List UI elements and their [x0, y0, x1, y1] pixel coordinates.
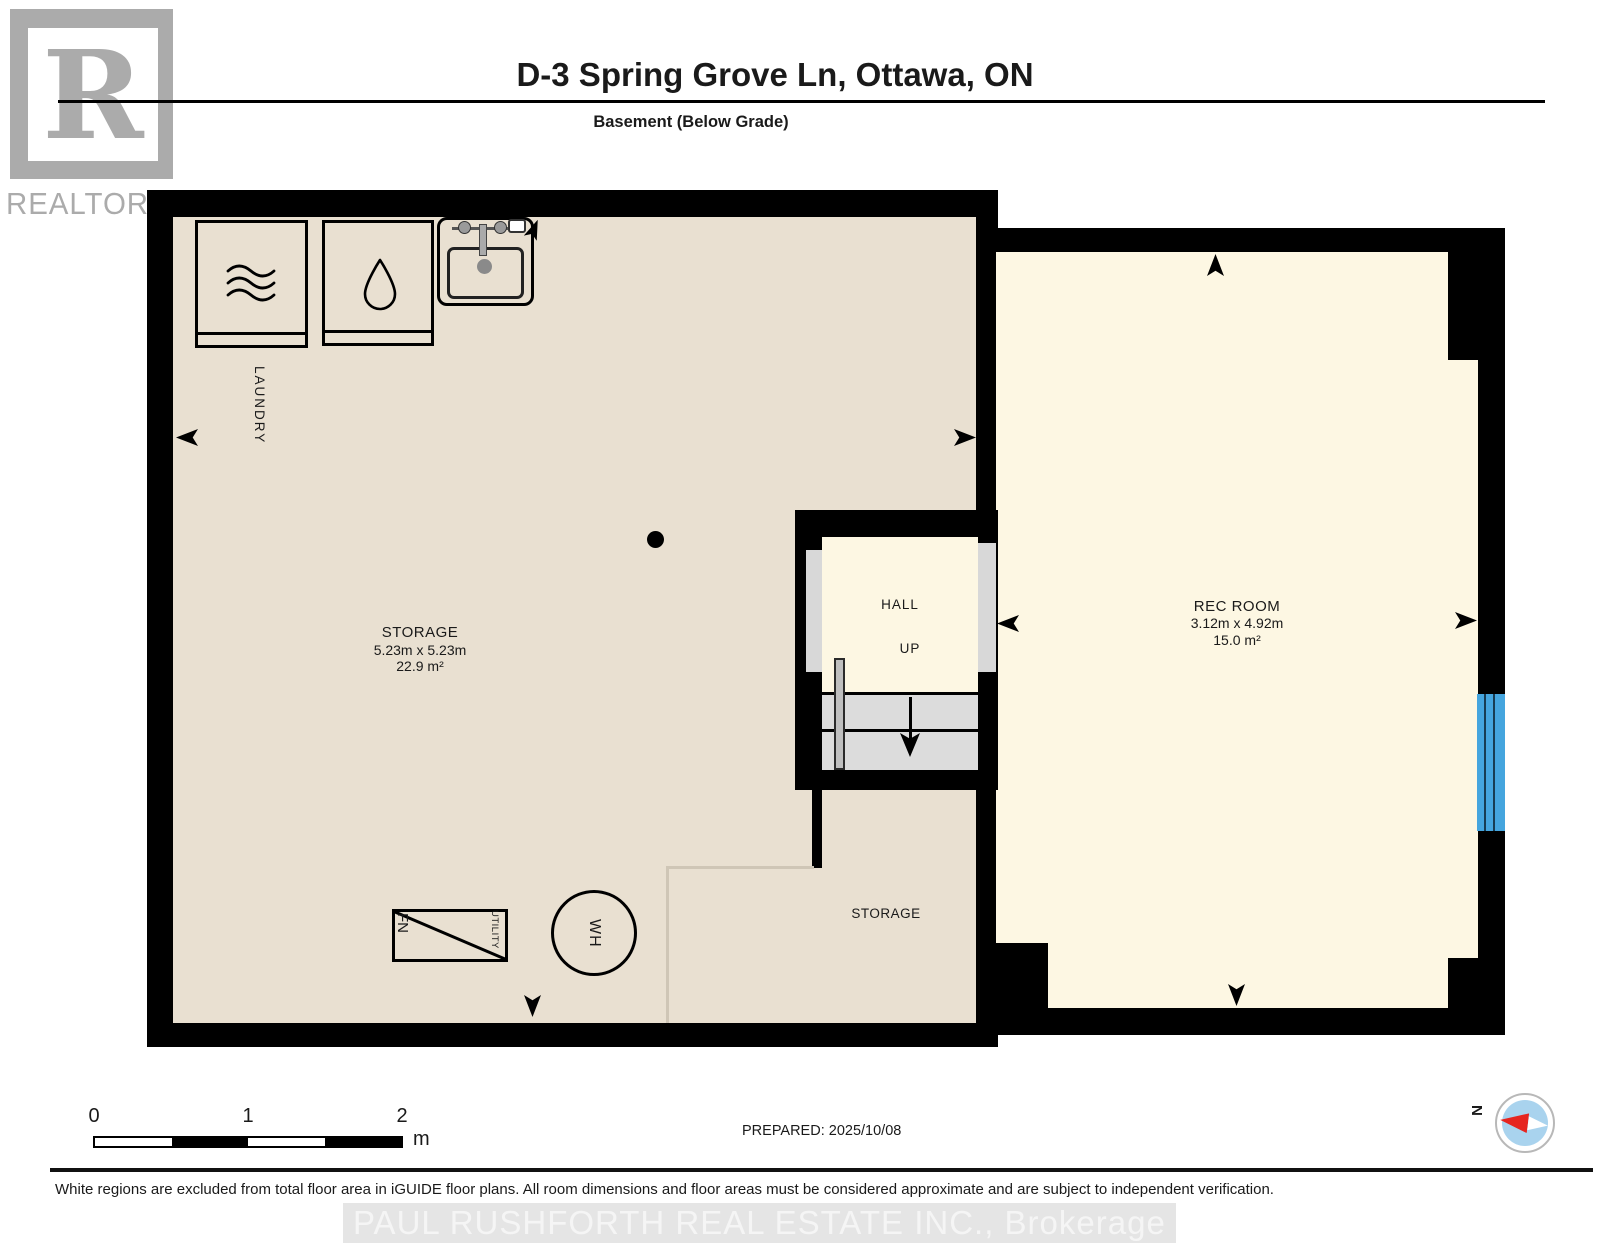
door-opening-left [806, 550, 822, 672]
scale-bar [93, 1136, 403, 1148]
laundry-label: LAUNDRY [252, 366, 267, 444]
scale-tick-1: 1 [238, 1105, 258, 1128]
window-pane-line [1493, 694, 1495, 831]
rec-room-label-group: REC ROOM 3.12m x 4.92m 15.0 m² [1117, 598, 1357, 649]
stairs-down-arrow-stem [909, 697, 912, 739]
room-area: 15.0 m² [1117, 632, 1357, 649]
hall-floor [822, 537, 978, 692]
furnace-label: FN [394, 913, 411, 933]
scale-segment [248, 1138, 325, 1146]
wave-icon [223, 262, 279, 304]
faucet-stem [479, 224, 487, 256]
faucet-knob [494, 221, 507, 234]
prepared-date: PREPARED: 2025/10/08 [742, 1123, 901, 1139]
appliance-panel-line [198, 332, 305, 335]
water-heater-label: WH [585, 919, 603, 948]
door-opening-right [978, 543, 996, 672]
up-label: UP [850, 641, 970, 656]
storage-main-label-group: STORAGE 5.23m x 5.23m 22.9 m² [330, 625, 510, 675]
needle-north-red [1499, 1110, 1529, 1133]
window [1477, 694, 1505, 831]
room-area: 22.9 m² [330, 658, 510, 675]
rec-room-corner-notch [996, 943, 1048, 1008]
footer-divider [50, 1168, 1593, 1172]
brokerage-watermark: PAUL RUSHFORTH REAL ESTATE INC., Brokera… [343, 1203, 1176, 1243]
camera-point-dot [647, 531, 664, 548]
hall-label: HALL [840, 597, 960, 612]
scale-tick-0: 0 [84, 1105, 104, 1128]
stair-step-line [822, 729, 978, 732]
scale-segment [172, 1138, 249, 1146]
rec-room-floor-lower [1048, 958, 1448, 1008]
disclaimer-text: White regions are excluded from total fl… [55, 1181, 1274, 1198]
page-title: D-3 Spring Grove Ln, Ottawa, ON [0, 56, 1550, 94]
sink-drain [477, 259, 492, 274]
scale-tick-2: 2 [392, 1105, 412, 1128]
floor-plan-page: R REALTOR® D-3 Spring Grove Ln, Ottawa, … [0, 0, 1600, 1243]
room-name: STORAGE [330, 625, 510, 642]
scale-segment [325, 1138, 402, 1146]
soap-dish [508, 219, 526, 233]
title-divider [58, 100, 1545, 103]
logo-letter-r: R [42, 34, 143, 156]
logo-inner-square: R [28, 28, 158, 161]
page-subtitle: Basement (Below Grade) [0, 113, 1382, 132]
rec-room-floor-upper [996, 252, 1448, 360]
room-dims: 3.12m x 4.92m [1117, 615, 1357, 632]
storage-divider-wall-stub [812, 788, 822, 868]
storage-lower-label: STORAGE [826, 906, 946, 921]
water-heater-circle: WH [551, 890, 637, 976]
faucet-knob [458, 221, 471, 234]
scale-segment [95, 1138, 172, 1146]
rec-room-floor-main [996, 360, 1478, 958]
utility-label: UTILITY [489, 910, 500, 949]
needle-south-white [1527, 1116, 1549, 1132]
logo-brand-label: REALTOR [6, 186, 149, 221]
room-name: REC ROOM [1117, 598, 1357, 615]
scale-unit-label: m [413, 1128, 430, 1151]
water-drop-icon [359, 256, 401, 312]
appliance-panel-line [325, 330, 431, 333]
storage-boundary-line-h [666, 866, 814, 869]
north-label: N [1469, 1105, 1486, 1116]
room-dims: 5.23m x 5.23m [330, 642, 510, 659]
storage-boundary-line-v [666, 866, 669, 1023]
window-pane-line [1484, 694, 1486, 831]
stair-handrail [834, 658, 845, 770]
